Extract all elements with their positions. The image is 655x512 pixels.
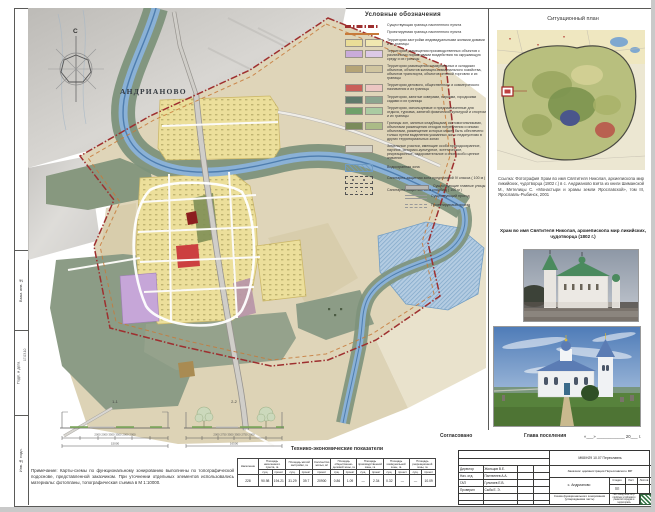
tep-val: 0.32: [383, 475, 396, 487]
tep-val: 2.34: [369, 475, 383, 487]
approval-head: Глава поселения: [524, 433, 566, 439]
stamp-role-checked: Проверил: [460, 488, 475, 492]
stamp-org-name: НКО Фонд «Институт проблем устойчивого р…: [610, 494, 638, 505]
tep-col-settlement-area: Площадь населенного пункта, га: [258, 459, 285, 470]
tep-val: 90.98: [258, 475, 272, 487]
business-swatch-planned: [365, 84, 383, 92]
boundary-planned-swatch: [345, 33, 379, 35]
industrial-zone: [120, 273, 159, 324]
residential-swatch-existing: [345, 39, 363, 47]
profile-1: 1-1 2000 2000 3500 3500 2000 2000 15000: [60, 399, 170, 448]
communal-swatch-existing: [345, 65, 363, 73]
legend-item-existing-driveway: Существующий проезд: [405, 194, 487, 199]
cemetery-mark: [334, 314, 336, 316]
page-shadow-right: [651, 0, 655, 512]
approval-agreed: Согласовано: [440, 433, 472, 439]
tep-title: Технико-экономические показатели: [252, 446, 422, 452]
stamp-name-dept: Пантелеев А.А.: [485, 474, 508, 478]
industrial-swatch-planned: [365, 50, 383, 58]
recreation-swatch-existing: [345, 107, 363, 115]
business-swatch-existing: [345, 84, 363, 92]
church-photo-modern: [493, 326, 641, 427]
tep-val: —: [396, 475, 410, 487]
tep-val: 20900: [313, 475, 331, 487]
tep-val: 39.7: [299, 475, 313, 487]
compass-north-label: С: [73, 28, 78, 35]
profile-2: 2-2 2000 2750 3500 3500 2750 2000 16500: [184, 399, 284, 448]
cemetery-mark: [340, 308, 342, 310]
tep-val: —: [409, 475, 422, 487]
legend-item-main-streets: Существующие главные улицы: [405, 184, 487, 190]
right-panel-divider: [488, 8, 489, 430]
industrial-swatch-existing: [345, 50, 363, 58]
stamp-stage-value: ПП: [609, 487, 625, 491]
cemetery-swatch-planned: [365, 122, 383, 130]
stamp-name-director: Жильцов В.Е.: [485, 467, 505, 471]
photo-reference-text: Ссылка: Фотография Храм во имя Святителя…: [498, 176, 644, 198]
note-text: Примечание: Карты-схемы по функционально…: [31, 468, 234, 486]
street-profiles: 1-1 2000 2000 3500 3500 2000 2000 15000: [32, 388, 288, 456]
margin-label-inv: Инв. № подл.: [14, 415, 28, 505]
parks-swatch-existing: [345, 96, 363, 104]
recreation-swatch-planned: [365, 107, 383, 115]
tep-col-housing-area: Площадь жилой застройки, га: [286, 459, 313, 470]
tep-col-communal-area: Площадь коммунальной зоны, га: [383, 459, 409, 470]
boundary-existing-swatch: [345, 25, 379, 27]
church-site: [186, 211, 198, 225]
stamp-name-checked: Сыба Е. Э.: [485, 488, 501, 492]
stamp-role-director: Директор: [460, 467, 474, 471]
tep-val-population: 228: [238, 475, 259, 487]
profile-1-total: 15000: [111, 442, 120, 446]
title-block: Директор Жильцов В.Е. Нач. отд. Пантелее…: [458, 450, 650, 505]
tep-val: 1.09: [343, 475, 357, 487]
planned-driveway-swatch: [405, 204, 427, 209]
profile-tree: [257, 407, 275, 428]
tep-col-industrial-area: Площадь производственной зоны, га: [357, 459, 383, 470]
stamp-customer: Заказчик: администрация Переславского МР: [549, 469, 651, 473]
communal-block: [178, 361, 195, 378]
stamp-stage-header: Стадия: [609, 479, 625, 482]
legend-item-boundary-existing: Существующая граница населенного пункта: [345, 23, 487, 28]
sanitary-industrial-swatch: [345, 176, 373, 184]
stamp-place: с. Андрианово: [549, 483, 609, 487]
water-protection-swatch: [345, 164, 373, 172]
legend-item-sanitary-industrial: Санитарно-защитная зона предприятий IV к…: [345, 175, 487, 184]
stamp-sheets-header: Листов: [637, 479, 651, 482]
legend-item-cemetery: Границы зон, занятых кладбищами, скотомо…: [345, 121, 487, 142]
tep-val: —: [357, 475, 370, 487]
urban-area: [595, 122, 615, 138]
page-shadow-bottom: [0, 507, 655, 512]
legend-item-valuable-land: Земельные участки, имеющие особо природо…: [345, 144, 487, 161]
situational-plan-title: Ситуационный план: [495, 16, 651, 22]
stamp-role-dept: Нач. отд.: [460, 474, 473, 478]
stamp-sheet-header: Лист: [625, 479, 637, 482]
existing-driveway-swatch: [405, 195, 427, 200]
margin-label-vzam: Взам. инв. №: [14, 250, 28, 330]
profile-2-dims: 2000 2750 3500 3500 2750 2000: [213, 433, 255, 437]
church-photo-archive-svg: [524, 250, 638, 321]
tep-val: 31.29: [286, 475, 300, 487]
legend: Условные обозначения Существующая границ…: [345, 12, 487, 198]
tep-col-housing-qty: Количество жилья, м²: [313, 459, 331, 470]
legend-item-parks: Территории, занятые скверами, парками, г…: [345, 95, 487, 104]
sanitary-cemetery-swatch: [345, 187, 373, 195]
cemetery-mark: [328, 308, 330, 310]
cemetery-swatch-existing: [345, 122, 363, 130]
tep-val: 0.86: [331, 475, 344, 487]
tep-table: Население Площадь населенного пункта, га…: [237, 458, 436, 487]
main-street-swatch: [405, 185, 429, 191]
profile-1-dims: 2000 2000 3500 3500 2000 2000: [94, 433, 136, 437]
legend-item-planned-driveway: Проектируемый проезд: [405, 203, 487, 208]
communal-swatch-planned: [365, 65, 383, 73]
legend-item-water-protection: Водоохранная зона: [345, 163, 487, 172]
legend-item-boundary-planned: Проектируемая граница населенного пункта: [345, 30, 487, 35]
street-profiles-svg: 1-1 2000 2000 3500 3500 2000 2000 15000: [32, 388, 288, 456]
situational-plan-map: [497, 30, 645, 170]
stamp-doc-name: Схема функционального зонирования (утвер…: [551, 495, 608, 502]
tep-col-population: Население: [238, 459, 259, 475]
profile-1-label: 1-1: [112, 399, 119, 404]
stamp-doc-code: МК8/Н29 10.07 Переславль: [549, 456, 651, 460]
legend-title: Условные обозначения: [365, 12, 487, 19]
residential-swatch-planned: [365, 39, 383, 47]
settlement-label: АНДРИАНОВО: [120, 87, 187, 96]
tep-val: 10.09: [422, 475, 436, 487]
legend-item-industrial: Территории размещения производственных о…: [345, 49, 487, 61]
parks-swatch-planned: [365, 96, 383, 104]
commercial-zone: [176, 244, 200, 268]
legend-item-business: Территории делового, общественного и ком…: [345, 83, 487, 92]
drawing-sheet: Взам. инв. № Подп. и дата 17.03.10 Инв. …: [0, 0, 655, 512]
profile-tree: [195, 407, 213, 428]
profile-2-label: 2-2: [231, 399, 238, 404]
stamp-name-gap: Гультяев Е.В.: [485, 481, 505, 485]
situational-map-svg: [497, 30, 645, 170]
tep-col-recreation-area: Площадь рекреационной зоны, га: [409, 459, 435, 470]
legend-item-recreation: Территории, используемые и предназначенн…: [345, 106, 487, 118]
lake: [560, 110, 580, 126]
tep-table-wrap: Население Площадь населенного пункта, га…: [237, 458, 436, 487]
stamp-role-gap: ГАП: [460, 481, 466, 485]
legend-item-communal: Территории размещения коммунальных и скл…: [345, 64, 487, 81]
church-photo-modern-svg: [494, 327, 640, 426]
tep-val: 194.21: [272, 475, 286, 487]
legend-roads: Существующие главные улицы Существующий …: [405, 184, 487, 212]
legend-item-residential: Территории застройки индивидуальными жил…: [345, 38, 487, 47]
valuable-land-swatch: [345, 145, 373, 153]
church-caption: Храм во имя Святителя Николая, архиеписк…: [495, 228, 651, 240]
approval-date-blank: «___» ____________ 20___ г.: [584, 434, 641, 439]
profile-2-total: 16500: [230, 442, 239, 446]
church-photo-archive: [523, 249, 639, 322]
tep-col-business-area: Площадь общественно-деловой зоны, га: [331, 459, 357, 470]
